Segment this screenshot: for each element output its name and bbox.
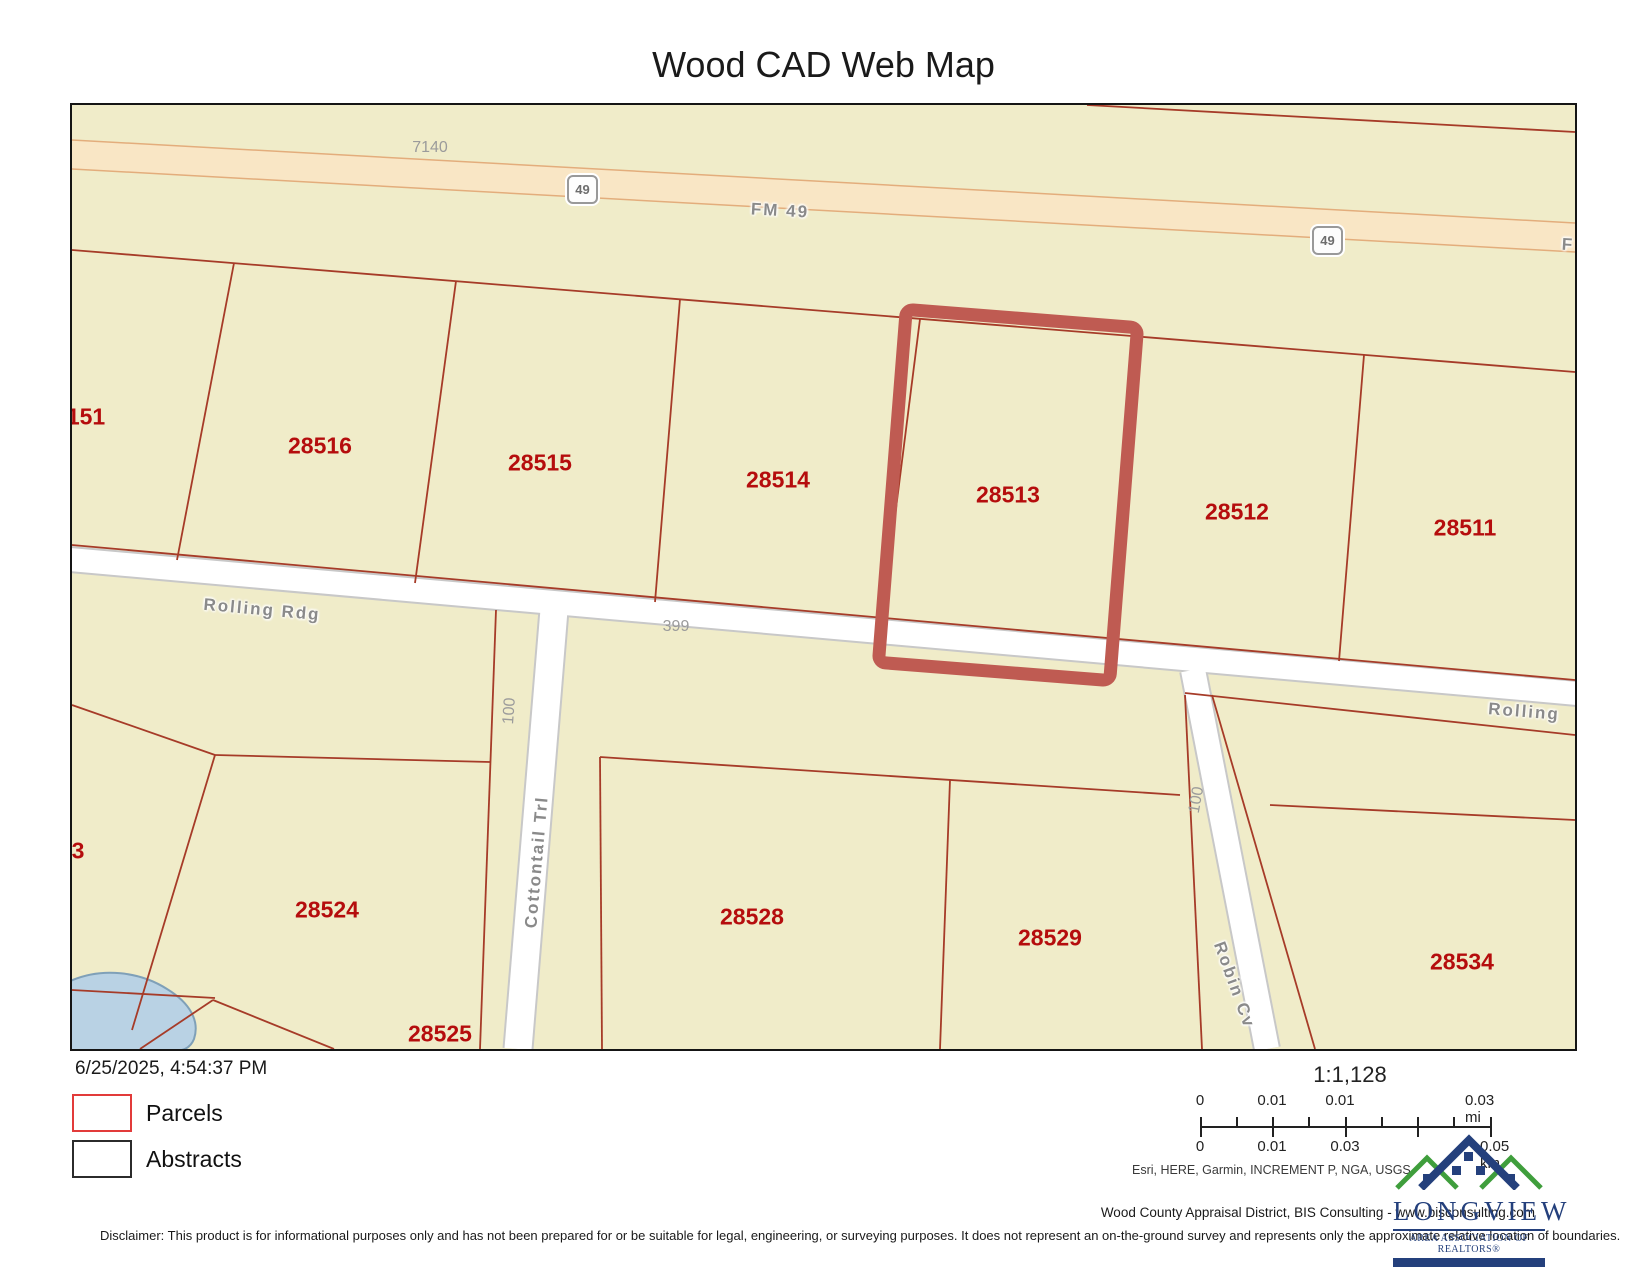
- legend-label: Abstracts: [146, 1146, 242, 1173]
- highway-shield-49: 49: [567, 175, 598, 204]
- abstracts-swatch-icon: [72, 1140, 132, 1178]
- disclaimer-text: Disclaimer: This product is for informat…: [100, 1228, 1520, 1243]
- lot-number-label: 100: [500, 697, 520, 725]
- parcel-label: 28525: [408, 1021, 472, 1048]
- parcel-label: 28513: [976, 482, 1040, 509]
- basemap-sources: Esri, HERE, Garmin, INCREMENT P, NGA, US…: [1132, 1163, 1411, 1177]
- realtor-association-logo: LONGVIEW AREA ASSOCIATION OF REALTORS®: [1393, 1126, 1545, 1267]
- scale-mi-label: 0.01: [1325, 1092, 1354, 1109]
- road-name-label: Rolling Rdg: [203, 595, 322, 625]
- page-title: Wood CAD Web Map: [70, 44, 1577, 86]
- parcel-label: 28511: [1434, 515, 1497, 542]
- scale-tick: [1200, 1127, 1202, 1137]
- logo-bar: [1393, 1258, 1545, 1267]
- scale-tick: [1381, 1117, 1383, 1127]
- scale-km-label: 0.03: [1330, 1138, 1359, 1155]
- scale-tick: [1345, 1127, 1347, 1137]
- scale-mi-label: 0.01: [1257, 1092, 1286, 1109]
- scale-tick: [1308, 1117, 1310, 1127]
- road-name-label: Rolling: [1488, 699, 1561, 725]
- scale-tick: [1345, 1117, 1347, 1127]
- parcel-label: 28534: [1430, 949, 1494, 976]
- scale-tick: [1200, 1117, 1202, 1127]
- parcel-label: 3: [72, 838, 85, 865]
- attribution-line: Wood County Appraisal District, BIS Cons…: [0, 1205, 1535, 1220]
- logo-subtitle: AREA ASSOCIATION OF REALTORS®: [1393, 1229, 1545, 1255]
- legend-item-abstracts: Abstracts: [72, 1140, 242, 1178]
- parcels-swatch-icon: [72, 1094, 132, 1132]
- parcel-label: 28514: [746, 467, 810, 494]
- map-labels: 1512851628515285142851328512285113285242…: [72, 105, 1575, 1049]
- export-timestamp: 6/25/2025, 4:54:37 PM: [75, 1058, 267, 1080]
- highway-shield-49: 49: [1312, 226, 1343, 255]
- scale-km-label: 0.01: [1257, 1138, 1286, 1155]
- legend-label: Parcels: [146, 1100, 223, 1127]
- road-name-label: F: [1561, 235, 1574, 256]
- parcel-label: 28515: [508, 450, 572, 477]
- logo-name: LONGVIEW: [1393, 1196, 1545, 1227]
- scale-km-label: 0: [1196, 1138, 1204, 1155]
- parcel-label: 28516: [288, 433, 352, 460]
- parcel-label: 28528: [720, 904, 784, 931]
- scale-ratio: 1:1,128: [1313, 1062, 1386, 1088]
- legend-item-parcels: Parcels: [72, 1094, 223, 1132]
- lot-number-label: 100: [1186, 785, 1208, 814]
- parcel-label: 28524: [295, 897, 359, 924]
- scale-tick: [1236, 1117, 1238, 1127]
- road-name-label: Cottontail Trl: [521, 795, 553, 929]
- lot-number-label: 7140: [412, 139, 448, 157]
- road-name-label: FM 49: [750, 199, 809, 222]
- roofs-logo-icon: [1393, 1126, 1545, 1190]
- parcel-label: 28512: [1205, 499, 1269, 526]
- scale-mi-label: 0.03 mi: [1465, 1092, 1505, 1126]
- road-name-label: Robin Cv: [1209, 939, 1259, 1031]
- scale-mi-label: 0: [1196, 1092, 1204, 1109]
- scale-tick: [1272, 1127, 1274, 1137]
- page: Wood CAD Web Map: [0, 0, 1650, 1275]
- lot-number-label: 399: [663, 618, 690, 636]
- parcel-label: 28529: [1018, 925, 1082, 952]
- parcel-label: 151: [70, 404, 105, 431]
- scale-tick: [1272, 1117, 1274, 1127]
- map-canvas[interactable]: 1512851628515285142851328512285113285242…: [70, 103, 1577, 1051]
